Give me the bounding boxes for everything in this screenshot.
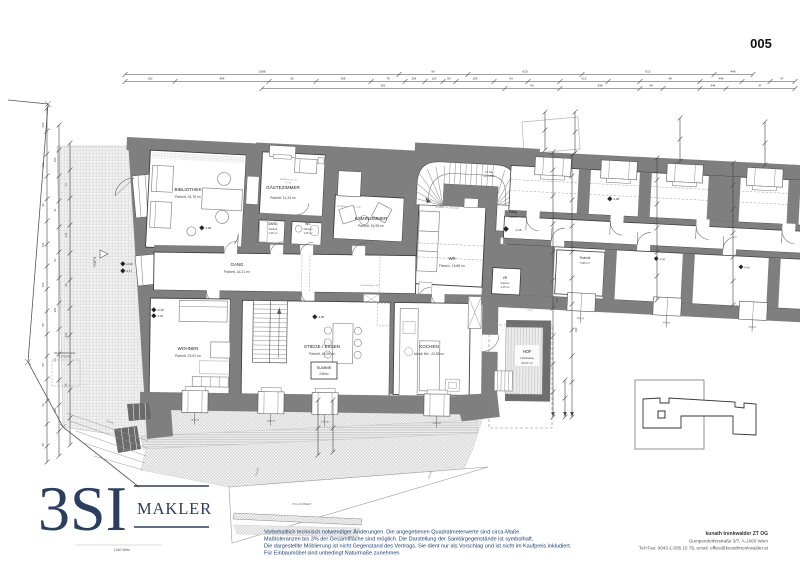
svg-text:446: 446 — [730, 70, 735, 74]
svg-text:STIEGE / ESSEN: STIEGE / ESSEN — [304, 344, 340, 349]
svg-text:625: 625 — [522, 70, 527, 74]
svg-text:künstl. Bel., 23,58 m²: künstl. Bel., 23,58 m² — [414, 352, 444, 356]
svg-text:1040 Wien: 1040 Wien — [114, 548, 130, 552]
svg-text:502: 502 — [41, 122, 45, 127]
svg-text:90: 90 — [64, 283, 68, 287]
svg-text:Parkett, 16,21 m²: Parkett, 16,21 m² — [224, 270, 251, 274]
svg-text:78: 78 — [386, 77, 390, 81]
svg-text:2,25 m²: 2,25 m² — [268, 231, 277, 235]
svg-text:254: 254 — [412, 77, 417, 81]
svg-text:Terrassentür m. OK: Terrassentür m. OK — [360, 284, 380, 287]
svg-text:GARD.: GARD. — [268, 222, 279, 226]
svg-text:90/210: 90/210 — [577, 317, 585, 320]
svg-text:140/210: 140/210 — [320, 420, 329, 423]
svg-text:90: 90 — [290, 77, 294, 81]
svg-text:Für Einbaumöbel sind unbedingt: Für Einbaumöbel sind unbedingt Naturmaße… — [264, 551, 399, 557]
svg-text:-4,08: -4,08 — [318, 315, 325, 319]
svg-text:-4,17: -4,17 — [126, 269, 133, 273]
svg-text:246m²: 246m² — [319, 372, 329, 376]
svg-text:A-1,06: A-1,06 — [285, 181, 292, 184]
svg-text:613: 613 — [582, 77, 587, 81]
svg-text:Holzbelag: Holzbelag — [520, 356, 534, 360]
svg-text:Gumpendorferstraße 3/7, A-1060: Gumpendorferstraße 3/7, A-1060 Wien — [689, 539, 769, 544]
svg-text:PFLANZBEET: PFLANZBEET — [292, 502, 312, 506]
svg-text:Tel+Fax: 0043-1-585 15 79, ema: Tel+Fax: 0043-1-585 15 79, email: office… — [639, 546, 769, 551]
svg-text:3SI: 3SI — [38, 473, 127, 544]
svg-text:48: 48 — [41, 443, 45, 447]
svg-text:80: 80 — [447, 77, 451, 81]
svg-text:Fliesen: Fliesen — [304, 227, 313, 231]
svg-text:1,65 m²: 1,65 m² — [303, 231, 312, 235]
svg-text:+0,00: +0,00 — [126, 262, 134, 266]
svg-text:140/210: 140/210 — [190, 419, 199, 422]
svg-text:ZISTERNE: ZISTERNE — [59, 354, 72, 358]
svg-text:489: 489 — [220, 77, 225, 81]
svg-text:260: 260 — [64, 332, 68, 337]
svg-text:48: 48 — [649, 84, 653, 88]
svg-text:381: 381 — [53, 307, 57, 312]
svg-text:346: 346 — [574, 327, 578, 332]
svg-text:169: 169 — [473, 77, 478, 81]
svg-text:Fliesen, 15,86 m²: Fliesen, 15,86 m² — [439, 264, 466, 268]
svg-text:o. ä.: o. ä. — [528, 309, 533, 312]
svg-text:31: 31 — [53, 208, 57, 212]
svg-text:45: 45 — [41, 403, 45, 407]
svg-text:18,87 m²: 18,87 m² — [521, 361, 533, 365]
svg-text:KOCHEN: KOCHEN — [419, 344, 439, 349]
svg-text:263: 263 — [41, 282, 45, 287]
svg-text:140/210: 140/210 — [266, 420, 275, 423]
svg-text:-4,30: -4,30 — [157, 314, 164, 318]
svg-text:Parkett, 15,98 m²: Parkett, 15,98 m² — [358, 224, 385, 228]
svg-text:90/210: 90/210 — [748, 326, 756, 329]
svg-text:WR: WR — [449, 256, 456, 261]
svg-text:845: 845 — [555, 297, 559, 302]
svg-text:kunath trenkwalder ZT OG: kunath trenkwalder ZT OG — [705, 531, 768, 537]
svg-text:1088: 1088 — [259, 70, 266, 74]
svg-text:938: 938 — [598, 84, 603, 88]
svg-text:140/210: 140/210 — [432, 422, 441, 425]
svg-text:TOP3: TOP3 — [92, 256, 97, 267]
svg-text:005: 005 — [750, 36, 772, 51]
svg-text:Vorbehaltlich technisch notwen: Vorbehaltlich technisch notwendiger Ände… — [264, 529, 521, 536]
svg-text:46: 46 — [41, 203, 45, 207]
svg-text:54: 54 — [509, 77, 513, 81]
svg-text:Parkett, 40,08 m²: Parkett, 40,08 m² — [309, 352, 336, 356]
svg-text:97: 97 — [53, 258, 57, 262]
svg-text:216: 216 — [64, 232, 68, 237]
svg-text:100: 100 — [148, 77, 153, 81]
svg-text:74: 74 — [64, 183, 68, 187]
svg-text:5,85 m²: 5,85 m² — [580, 261, 590, 265]
svg-text:48: 48 — [668, 77, 672, 81]
svg-text:-4,08: -4,08 — [515, 228, 522, 232]
svg-text:WOHNEN: WOHNEN — [178, 346, 199, 351]
svg-text:MAKLER: MAKLER — [137, 499, 212, 518]
svg-text:80: 80 — [530, 84, 534, 88]
svg-text:90: 90 — [431, 70, 435, 74]
svg-text:GANG: GANG — [231, 262, 245, 267]
svg-text:47: 47 — [758, 84, 762, 88]
svg-text:HOF: HOF — [523, 349, 532, 354]
svg-text:Technik: Technik — [580, 256, 591, 260]
svg-text:-4,08: -4,08 — [659, 257, 666, 261]
svg-text:Parkett, 23,61 m²: Parkett, 23,61 m² — [175, 354, 202, 358]
svg-text:GÄSTEZIMMER: GÄSTEZIMMER — [266, 184, 300, 190]
svg-text:SUMME: SUMME — [317, 365, 332, 370]
svg-text:90/210: 90/210 — [663, 321, 671, 324]
svg-text:446: 446 — [719, 77, 724, 81]
svg-text:Parkett, 24,76 m²: Parkett, 24,76 m² — [175, 195, 202, 199]
svg-text:150: 150 — [53, 157, 57, 162]
svg-text:444: 444 — [711, 84, 716, 88]
svg-text:WC: WC — [305, 222, 311, 226]
svg-text:308: 308 — [341, 77, 346, 81]
svg-text:o. ä.: o. ä. — [720, 309, 725, 312]
svg-text:BIBLIOTHEK: BIBLIOTHEK — [174, 187, 202, 192]
svg-text:Fliesen: Fliesen — [501, 281, 510, 285]
svg-text:47: 47 — [780, 77, 784, 81]
svg-text:613: 613 — [645, 70, 650, 74]
svg-text:Parkett, 11,43 m²: Parkett, 11,43 m² — [270, 196, 297, 200]
svg-text:126: 126 — [432, 77, 437, 81]
svg-text:1,94 m²: 1,94 m² — [508, 215, 518, 219]
svg-text:REGENWASSER-: REGENWASSER- — [54, 351, 75, 355]
svg-text:-4,08: -4,08 — [205, 226, 212, 230]
svg-text:Maßtoleranzen bis 3% der Gesam: Maßtoleranzen bis 3% der Gesamtfläche si… — [264, 537, 534, 543]
svg-text:Die dargestellte Möblierung is: Die dargestellte Möblierung ist nicht Ge… — [264, 544, 572, 550]
svg-text:VR: VR — [503, 276, 508, 280]
svg-text:186: 186 — [41, 162, 45, 167]
svg-text:120: 120 — [53, 407, 57, 412]
svg-text:-4,08: -4,08 — [613, 197, 620, 201]
svg-text:Parkett: Parkett — [269, 227, 278, 231]
svg-text:Gang: Gang — [509, 210, 517, 214]
svg-text:-4,08: -4,08 — [744, 265, 751, 269]
svg-text:381: 381 — [381, 84, 386, 88]
svg-text:140: 140 — [41, 242, 45, 247]
svg-text:KAMINZIMMER: KAMINZIMMER — [355, 216, 388, 221]
svg-text:26,7/830: 26,7/830 — [484, 174, 495, 178]
svg-text:58: 58 — [41, 363, 45, 367]
svg-text:+0,28: +0,28 — [157, 308, 165, 312]
svg-text:4,15 m²: 4,15 m² — [500, 285, 509, 289]
svg-text:95: 95 — [41, 323, 45, 327]
